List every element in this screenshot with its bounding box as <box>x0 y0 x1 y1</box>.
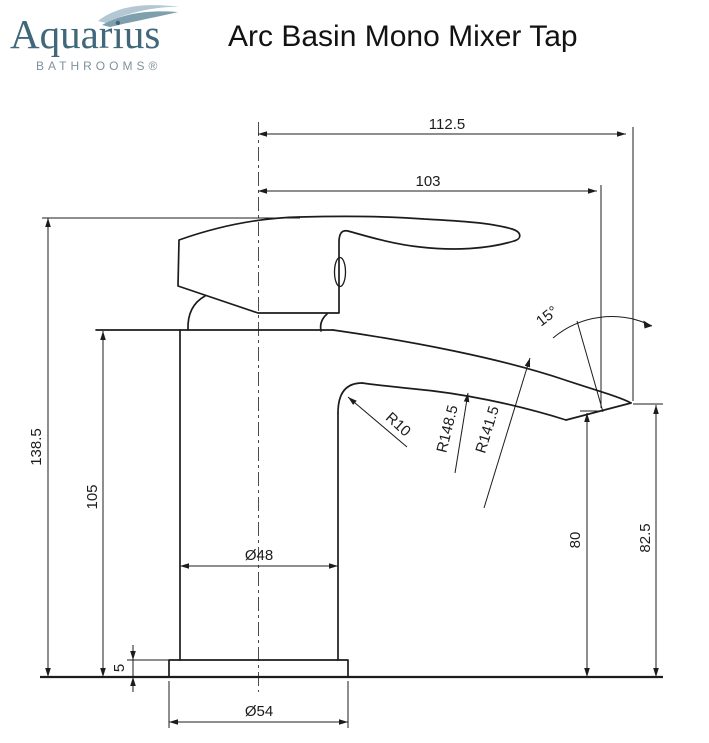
lever-handle <box>178 216 520 313</box>
dim-overall-projection: 112.5 <box>429 116 465 133</box>
dim-underside-radius: R148.5 <box>434 403 462 454</box>
tap-outline <box>40 216 663 677</box>
dim-body-diameter: Ø48 <box>245 547 273 564</box>
dim-body-height: 105 <box>84 484 101 509</box>
dim-topside-radius: R141.5 <box>472 404 502 455</box>
technical-drawing: 112.5 103 138.5 105 5 Ø48 Ø54 80 82.5 15… <box>0 0 709 743</box>
cartridge-boss <box>335 258 346 287</box>
dimension-arrows <box>45 131 659 725</box>
dim-base-height: 5 <box>111 664 128 672</box>
dim-outlet-height: 80 <box>567 532 584 549</box>
dim-fillet-radius: R10 <box>382 409 414 440</box>
dim-overall-height: 138.5 <box>28 428 45 466</box>
neck-arc-left <box>188 296 205 330</box>
angle-line <box>577 321 603 412</box>
r148-leader <box>455 393 468 473</box>
neck-arc-right <box>321 314 327 331</box>
dim-base-diameter: Ø54 <box>245 703 273 720</box>
angle-arc <box>553 317 652 338</box>
dim-spout-reach: 103 <box>415 173 440 190</box>
dim-spout-angle: 15° <box>533 303 561 330</box>
dim-tip-height: 82.5 <box>637 523 654 552</box>
spout-top-curve <box>333 330 631 403</box>
